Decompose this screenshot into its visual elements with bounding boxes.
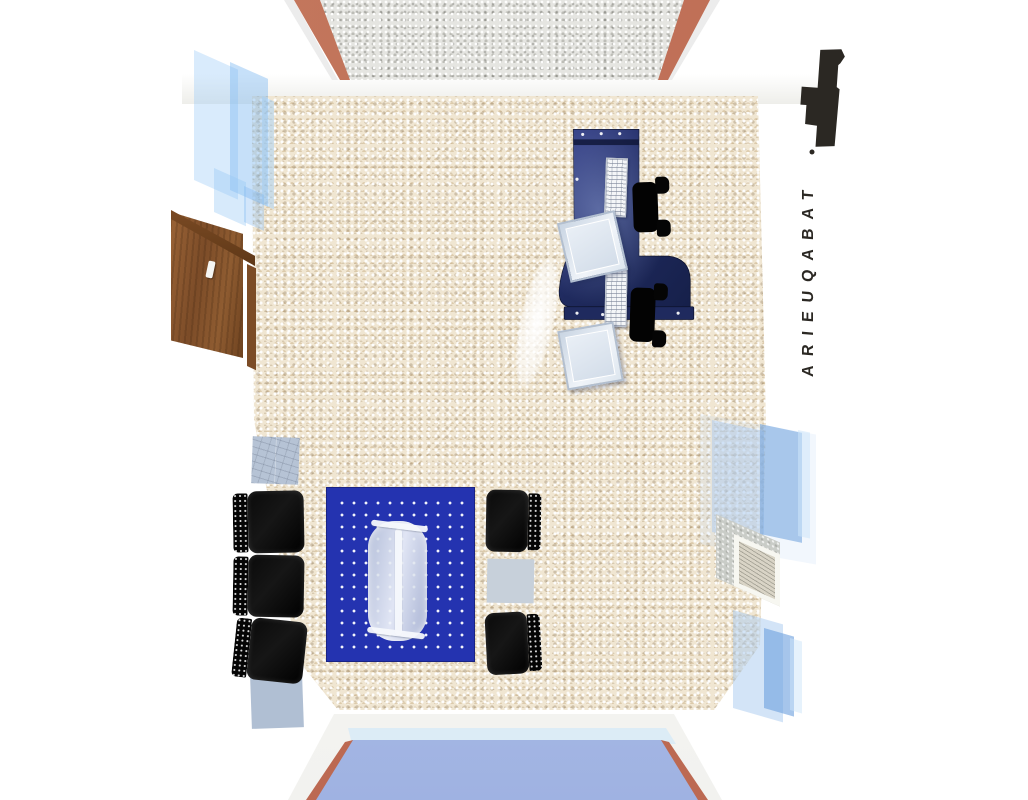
side-table-right [487, 559, 535, 604]
chair-backrest [232, 493, 248, 552]
chair-seat [247, 490, 304, 553]
monitor-screen [565, 330, 615, 383]
lounge-chair-5 [484, 611, 542, 677]
display-case-top-left-layer3 [262, 96, 274, 209]
chair-seat [485, 490, 528, 553]
monitor-screen [565, 219, 619, 275]
display-case-top-left-streak2 [244, 186, 264, 231]
table-spine [395, 529, 402, 635]
desk-chair-2 [629, 282, 669, 347]
door-jamb [247, 264, 256, 370]
desk-keyboard-2 [604, 266, 627, 327]
chair-seat [247, 555, 304, 618]
chair-seat [484, 611, 529, 675]
desk-chair-1 [632, 176, 672, 237]
brand-sign-text: ARIEUQABAT [800, 158, 818, 400]
desk-monitor-2 [557, 322, 624, 391]
chair-seat [246, 617, 308, 685]
magazine-table-upper [251, 436, 300, 485]
lounge-chair-3 [231, 615, 308, 685]
lounge-chair-2 [232, 554, 304, 618]
scene-canvas: ARIEUQABAT [0, 0, 1028, 800]
chair-backrest [232, 556, 248, 615]
lounge-chair-1 [232, 490, 304, 554]
floor [0, 0, 1028, 800]
display-case-right-upper-layer3 [798, 430, 810, 539]
chair-armrest [654, 283, 669, 300]
lounge-chair-4 [485, 490, 541, 554]
display-case-right-lower-layer3 [790, 638, 802, 713]
chair-backrest [528, 493, 542, 550]
brand-logo-icon [795, 40, 851, 156]
chair-armrest [655, 176, 670, 193]
display-case-right-upper-layer2 [760, 424, 802, 543]
chair-armrest [652, 330, 667, 347]
desk-keyboard-1 [604, 158, 628, 218]
chair-armrest [656, 219, 671, 236]
